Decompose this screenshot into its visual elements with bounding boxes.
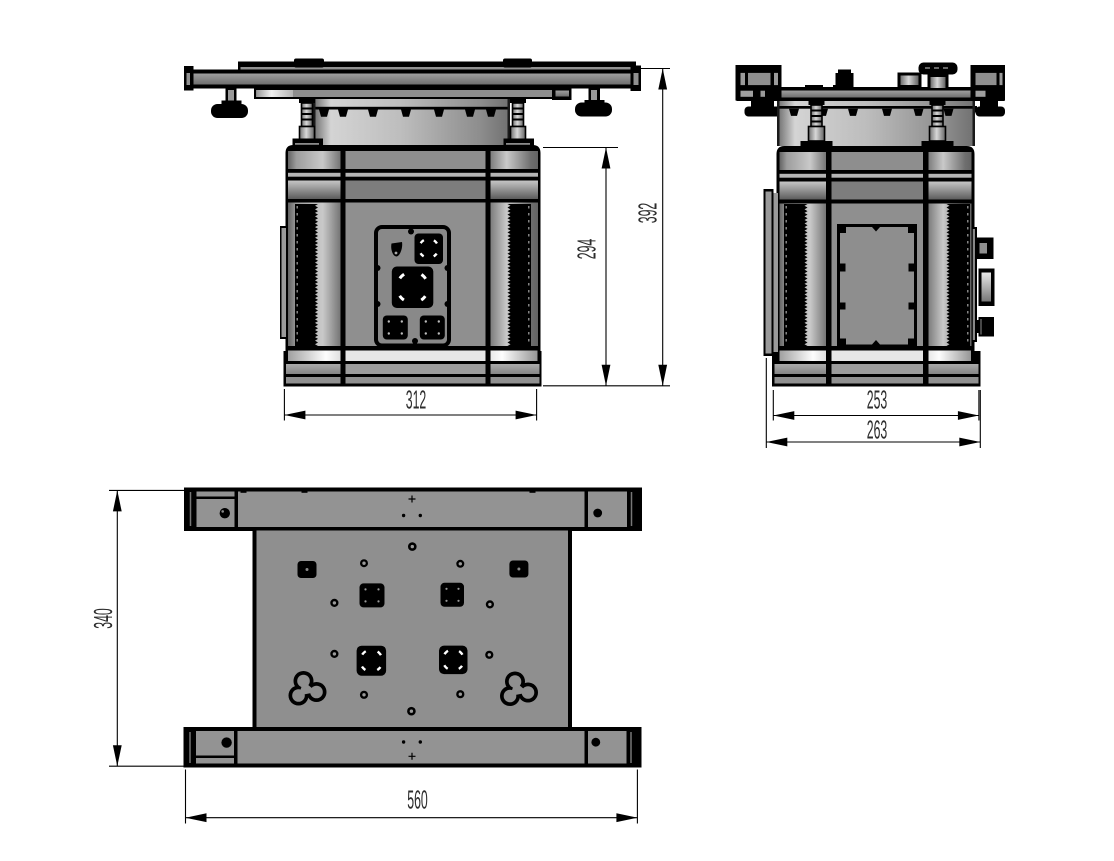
svg-text:263: 263 xyxy=(867,415,888,445)
svg-text:312: 312 xyxy=(406,384,427,414)
svg-text:392: 392 xyxy=(633,203,663,224)
svg-text:560: 560 xyxy=(407,785,428,815)
svg-text:340: 340 xyxy=(88,608,118,629)
svg-text:294: 294 xyxy=(572,239,602,260)
svg-text:253: 253 xyxy=(867,385,888,415)
